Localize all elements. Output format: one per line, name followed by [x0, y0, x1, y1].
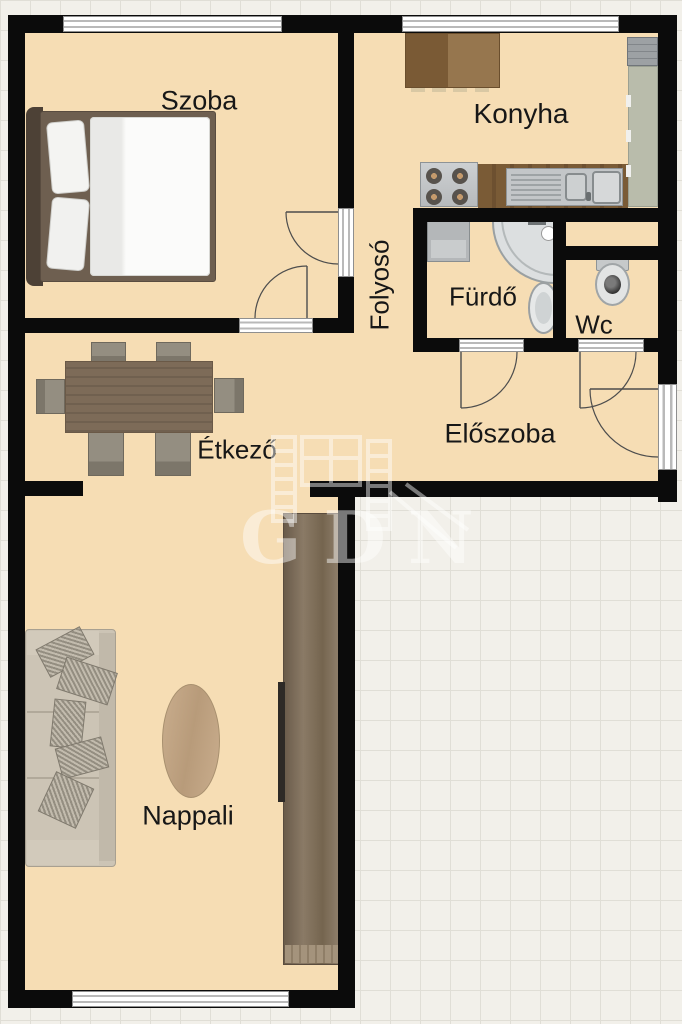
door-furdo [459, 339, 524, 352]
sofa-cushion-icon [27, 840, 99, 865]
door-szoba [338, 208, 354, 277]
sink-drainer-icon [511, 173, 561, 201]
dining-chair-icon [155, 432, 191, 476]
dining-chair-icon [88, 432, 124, 476]
window-szoba [63, 16, 282, 32]
wall-nappali-right [338, 481, 355, 1008]
wall-left [8, 15, 25, 1008]
stove-burner-icon [452, 168, 468, 184]
tall-cabinet-icon [628, 66, 658, 207]
kitchen-table-icon [405, 33, 500, 88]
room-label-konyha: Konyha [474, 98, 569, 130]
floor-plan-canvas: Szoba Konyha Folyosó Fürdő Wc Étkező Elő… [0, 0, 682, 1024]
cabinet-handle-icon [626, 165, 631, 177]
tv-icon [278, 682, 285, 802]
washing-machine-lid-icon [431, 240, 466, 258]
room-label-folyoso: Folyosó [365, 239, 396, 330]
wall-furdo-wc-divider [553, 208, 566, 352]
bed-pillow-icon [46, 196, 90, 271]
door-szoba-etkezo [239, 318, 313, 333]
window-nappali [72, 991, 289, 1007]
cabinet-handle-icon [626, 130, 631, 142]
wardrobe-icon [283, 513, 340, 965]
stove-burner-icon [426, 168, 442, 184]
room-label-eloszoba: Előszoba [444, 419, 555, 450]
window-konyha [402, 16, 619, 32]
room-label-furdo: Fürdő [449, 282, 517, 313]
rug-icon [162, 684, 220, 798]
wardrobe-base-icon [285, 945, 338, 963]
sink-faucet-icon [586, 192, 591, 201]
dining-table-icon [65, 361, 213, 433]
cabinet-handle-icon [626, 95, 631, 107]
room-label-szoba: Szoba [161, 86, 238, 117]
wall-etkezo-stub [8, 481, 83, 496]
door-wc [578, 339, 644, 352]
room-label-etkezo: Étkező [197, 435, 277, 466]
bed-pillow-icon [46, 119, 90, 194]
wall-kitchen-bottom [413, 208, 676, 222]
wall-wc-top [553, 246, 676, 260]
dining-chair-icon [36, 379, 65, 414]
room-label-wc: Wc [575, 310, 613, 341]
sink-basin-icon [565, 173, 587, 201]
dining-chair-icon [156, 342, 191, 363]
bed-duvet-icon [90, 117, 210, 276]
wall-eloszoba-bottom [310, 481, 676, 497]
wall-furdo-left [413, 208, 427, 352]
refrigerator-icon [627, 37, 658, 66]
entrance-door [658, 384, 677, 470]
stove-burner-icon [426, 189, 442, 205]
stove-burner-icon [452, 189, 468, 205]
wall-szoba-folyoso [338, 15, 354, 333]
washbasin-bowl-icon [535, 292, 552, 324]
room-label-nappali: Nappali [142, 801, 234, 832]
dining-chair-icon [91, 342, 126, 363]
sink-basin-icon [592, 171, 621, 204]
dining-chair-icon [214, 378, 244, 413]
toilet-bowl-inner-icon [604, 275, 621, 294]
